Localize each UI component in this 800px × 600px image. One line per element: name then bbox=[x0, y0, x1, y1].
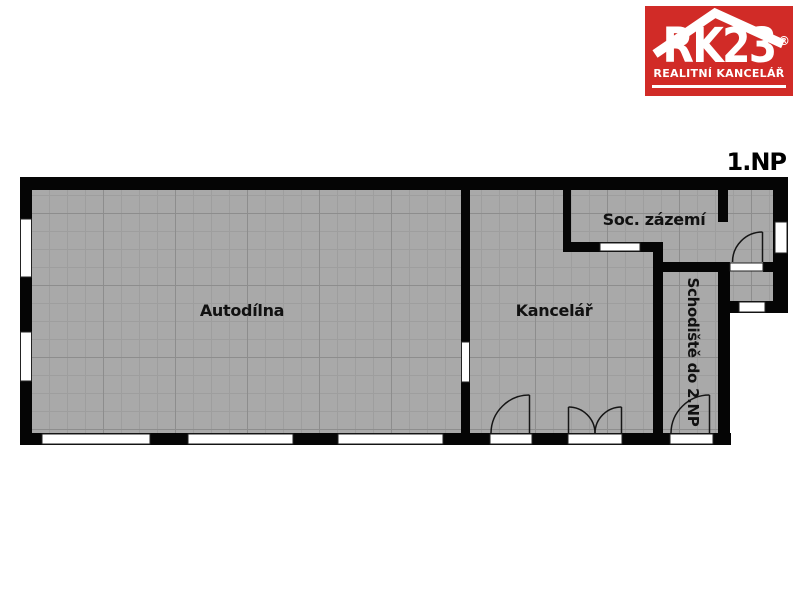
room-label-autodilna: Autodílna bbox=[152, 301, 332, 320]
window-right bbox=[775, 222, 787, 253]
wall-seroom-top-seg bbox=[763, 262, 773, 272]
door-kancelar-double bbox=[569, 407, 622, 433]
window-seroom bbox=[739, 302, 765, 312]
door-seroom bbox=[733, 232, 763, 262]
wall-top bbox=[20, 177, 788, 190]
room-label-kancelar: Kancelář bbox=[464, 301, 644, 320]
window-bottom-3 bbox=[338, 434, 443, 444]
window-bottom-2 bbox=[188, 434, 293, 444]
wall-schodiste-right bbox=[718, 262, 730, 445]
window-left-2 bbox=[21, 332, 32, 381]
opening-divider-wall bbox=[462, 342, 470, 382]
floorplan-drawing bbox=[0, 0, 800, 600]
door-gap-kancelar-single bbox=[490, 434, 532, 444]
floorplan-page: RK23 ® REALITNÍ KANCELÁŘ 1.NP bbox=[0, 0, 800, 600]
window-left-1 bbox=[21, 219, 32, 277]
door-gap-soc bbox=[600, 243, 640, 251]
door-kancelar-single bbox=[491, 395, 530, 433]
wall-left bbox=[20, 177, 32, 445]
room-label-schodiste: Schodiště do 2.NP bbox=[682, 276, 702, 428]
room-label-soc-zazemi: Soc. zázemí bbox=[564, 210, 744, 229]
wall-schodiste-top bbox=[653, 262, 730, 272]
door-gap-schodiste bbox=[670, 434, 713, 444]
door-gap-seroom bbox=[730, 263, 763, 271]
window-bottom-1 bbox=[42, 434, 150, 444]
wall-schodiste-left bbox=[653, 242, 663, 445]
door-gap-kancelar-double bbox=[568, 434, 622, 444]
